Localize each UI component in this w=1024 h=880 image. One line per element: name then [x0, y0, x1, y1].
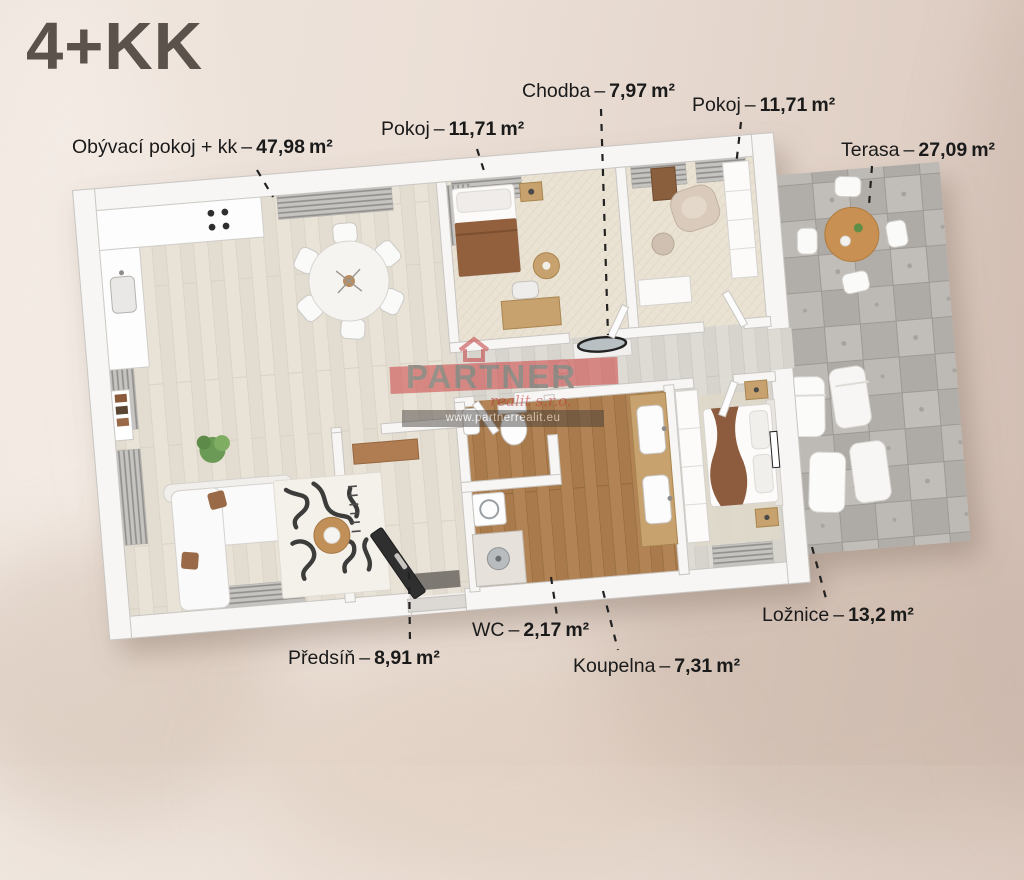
watermark-brand: PARTNER [406, 358, 577, 396]
room-label-predsin: Předsíň–8,91m² [288, 647, 440, 670]
shelf-unit [651, 167, 678, 201]
room-area: 8,91 [374, 647, 412, 669]
room-label-wc: WC–2,17m² [472, 619, 589, 642]
room-label-loznice: Ložnice–13,2m² [762, 604, 914, 627]
room-area: 2,17 [523, 619, 561, 641]
room-name: Pokoj [692, 94, 741, 116]
room-label-terasa: Terasa–27,09m² [841, 139, 995, 162]
room-area: 7,97 [609, 80, 647, 102]
room-area: 47,98 [256, 136, 305, 158]
watermark: PARTNER realit s.r.o. www.partnerrealit.… [396, 338, 614, 430]
leader-loznice [812, 547, 827, 602]
room-area: 11,71 [760, 94, 808, 116]
kitchen-sink [110, 276, 137, 314]
room-area: 27,09 [918, 139, 967, 161]
room-name: Obývací pokoj + kk [72, 136, 237, 158]
bed-double [702, 399, 782, 511]
washing-machine [472, 492, 507, 527]
room-label-obyvaci: Obývací pokoj + kk–47,98m² [72, 136, 333, 159]
dresser [638, 276, 692, 306]
room-label-koupelna: Koupelna–7,31m² [573, 655, 740, 678]
room-name: Terasa [841, 139, 900, 161]
terrace-door-opening [767, 328, 794, 370]
room-name: WC [472, 619, 505, 641]
room-label-chodba: Chodba–7,97m² [522, 80, 675, 103]
bookshelf [111, 390, 133, 441]
desk-chair [512, 281, 539, 300]
desk [501, 297, 561, 330]
watermark-url: www.partnerrealit.eu [402, 410, 604, 427]
room-area: 7,31 [674, 655, 712, 677]
room-name: Pokoj [381, 118, 430, 140]
room-name: Chodba [522, 80, 590, 102]
leader-koupelna [603, 591, 618, 650]
watermark-subtitle: realit s.r.o. [490, 392, 572, 410]
room-label-pokoj-right: Pokoj–11,71m² [692, 94, 835, 117]
room-area: 13,2 [848, 604, 886, 626]
room-name: Předsíň [288, 647, 355, 669]
room-name: Ložnice [762, 604, 829, 626]
room-label-pokoj-top: Pokoj–11,71m² [381, 118, 524, 141]
room-name: Koupelna [573, 655, 655, 677]
room-area: 11,71 [449, 118, 497, 140]
